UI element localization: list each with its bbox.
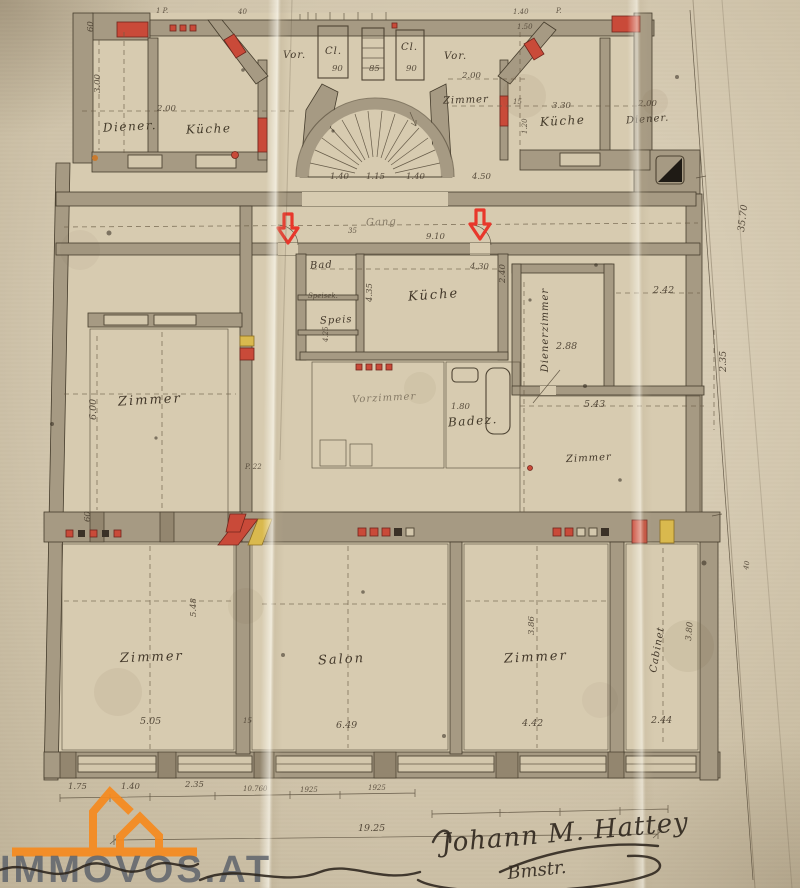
dim-text: 19.25 <box>358 823 385 834</box>
signature-title: Bmstr. <box>505 857 567 884</box>
dim-text: 4.50 <box>471 172 492 182</box>
dim-text: 2.00 <box>156 104 177 114</box>
dim-text: 85 <box>369 64 380 74</box>
dim-text: 40 <box>742 560 752 572</box>
room-label-salon: Salon <box>318 651 366 668</box>
dim-text: 3.30 <box>552 101 572 111</box>
dim-text: 60 <box>86 21 96 32</box>
dim-text: 4.30 <box>469 262 490 272</box>
dim-text: 5.05 <box>140 716 161 727</box>
room-label-diener-tr: Diener. <box>625 113 670 127</box>
room-label-cl-left: Cl. <box>325 46 342 57</box>
room-label-speis: Speis <box>320 314 353 327</box>
dim-text: 60 <box>83 511 93 522</box>
dim-text: 6.49 <box>336 720 357 731</box>
watermark-text: IMMOVOS.AT <box>0 849 272 888</box>
dim-text: P. <box>555 7 562 15</box>
room-label-vor-left: Vor. <box>283 50 306 61</box>
scanned-floor-plan-sheet: Diener. Küche Vor. Cl. Cl. Vor. Zimmer K… <box>0 0 800 888</box>
dim-text: 1.40 <box>513 8 529 16</box>
dim-text: 1.80 <box>451 402 471 412</box>
dim-text: 1925 <box>300 786 318 794</box>
dim-text: 2.35 <box>184 780 204 790</box>
room-label-vor-right: Vor. <box>444 51 467 62</box>
dim-text: 6.00 <box>88 399 99 420</box>
room-label-zimmer-tr: Zimmer <box>442 94 489 107</box>
dim-text: 40 <box>237 8 247 16</box>
dim-text: 4.35 <box>365 283 375 303</box>
fold-line <box>722 0 792 888</box>
dim-text: 5.43 <box>584 399 605 410</box>
dim-text: 1.75 <box>68 782 87 792</box>
dim-text: 2.40 <box>498 263 508 284</box>
dim-text: 4.25 <box>322 326 330 343</box>
room-label-gang: Gang <box>366 216 397 228</box>
dim-text: 1.50 <box>517 23 533 31</box>
dim-text: 2.42 <box>652 285 674 296</box>
dim-text: P. 22 <box>244 463 262 471</box>
dim-text: 2.44 <box>650 715 672 726</box>
dim-text: 2.88 <box>555 341 577 352</box>
dim-text: 1.40 <box>121 782 141 792</box>
room-label-diener-tl: Diener. <box>102 118 158 135</box>
dim-text: 1.40 <box>330 172 350 182</box>
room-label-bad: Bad <box>309 259 333 271</box>
watermark-house-icon <box>12 792 197 852</box>
dim-text: 3.86 <box>527 615 537 635</box>
dim-text: 4.42 <box>521 718 543 729</box>
dim-text: 1 P. <box>156 7 168 15</box>
dim-text: 15 <box>243 717 252 725</box>
dim-text: 1.20 <box>521 118 529 134</box>
room-label-kueche-tr: Küche <box>539 113 586 129</box>
dim-text: 5.48 <box>189 597 199 617</box>
dim-text: 2.00 <box>461 71 482 81</box>
room-label-speisek: Speisek. <box>308 292 338 300</box>
room-label-dienerzimmer: Dienerzimmer <box>540 288 551 374</box>
dim-text: 90 <box>406 64 417 74</box>
dim-text: 90 <box>332 64 343 74</box>
dim-text: 35.70 <box>736 204 750 232</box>
room-label-kueche-tl: Küche <box>185 121 232 137</box>
dim-text: 1.40 <box>406 172 426 182</box>
dim-text: 3.00 <box>93 73 103 93</box>
dim-text: 1925 <box>368 784 386 792</box>
dim-text: 35 <box>348 227 357 235</box>
floor-plan-drawing: Diener. Küche Vor. Cl. Cl. Vor. Zimmer K… <box>0 0 800 888</box>
dim-text: 2.35 <box>718 351 729 373</box>
dim-text: 1.15 <box>366 172 385 182</box>
room-label-zimmer-bl: Zimmer <box>119 649 184 666</box>
dim-text: 10.760 <box>243 785 268 793</box>
room-label-cl-right: Cl. <box>401 42 418 53</box>
dim-text: 9.10 <box>426 232 446 242</box>
